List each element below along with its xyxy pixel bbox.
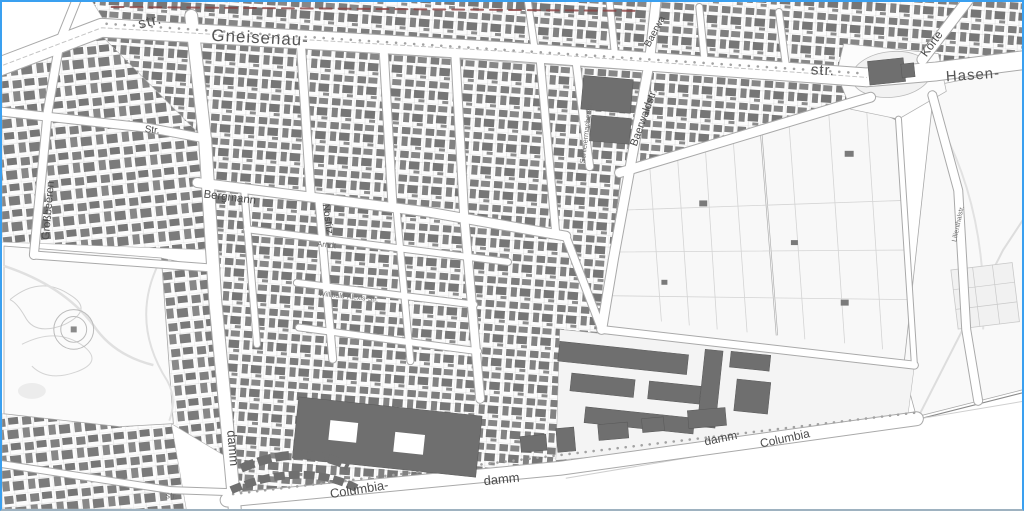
street-label-left-str: Str.: [144, 124, 160, 136]
viktoriapark: [4, 246, 173, 427]
street-label-mehringdamm: damm: [224, 430, 242, 467]
map-viewport: str. Gneisenau- str. Hasen- Körte Großbe…: [0, 0, 1024, 511]
city-map[interactable]: str. Gneisenau- str. Hasen- Körte Großbe…: [2, 2, 1022, 509]
street-label-gneisenaustrasse-suffix: str.: [811, 62, 835, 79]
street-label-bottom-str: str.: [165, 490, 178, 501]
street-label-columbiadamm-west-suffix: damm: [483, 470, 520, 489]
